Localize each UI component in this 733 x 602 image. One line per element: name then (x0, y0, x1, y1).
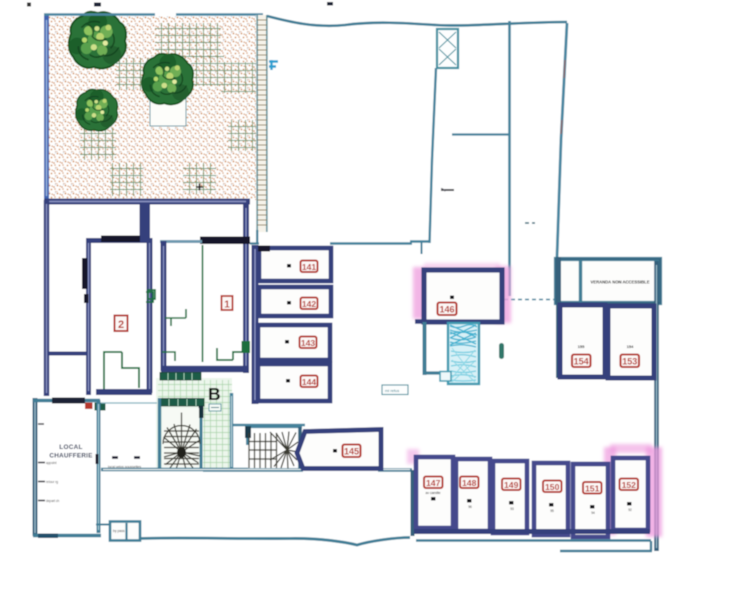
svg-text:VERANDA NON ACCESSIBLE: VERANDA NON ACCESSIBLE (590, 280, 649, 285)
svg-text:147: 147 (426, 478, 441, 488)
svg-text:95: 95 (550, 509, 554, 513)
svg-text:retour rg: retour rg (46, 480, 58, 484)
svg-text:141: 141 (302, 262, 317, 272)
svg-text:149: 149 (504, 480, 519, 490)
svg-text:2: 2 (118, 319, 124, 331)
svg-text:93: 93 (510, 507, 514, 511)
svg-text:depart ch: depart ch (46, 499, 60, 503)
svg-text:146: 146 (439, 305, 454, 315)
svg-text:154: 154 (627, 344, 634, 349)
svg-text:appoint: appoint (46, 461, 57, 465)
svg-text:CHAUFFERIE: CHAUFFERIE (49, 453, 93, 460)
svg-text:94: 94 (591, 511, 595, 515)
svg-text:1: 1 (224, 300, 230, 311)
svg-text:LOCAL: LOCAL (59, 444, 83, 451)
svg-text:by pass: by pass (113, 529, 125, 533)
svg-text:B: B (208, 384, 221, 404)
svg-text:144: 144 (302, 377, 317, 387)
svg-text:151: 151 (585, 483, 600, 493)
svg-text:154: 154 (574, 357, 589, 367)
svg-text:96: 96 (468, 505, 472, 509)
svg-text:143: 143 (301, 338, 316, 348)
svg-text:153: 153 (622, 357, 637, 367)
svg-text:92: 92 (628, 508, 632, 512)
svg-text:155: 155 (578, 344, 585, 349)
svg-text:145: 145 (344, 447, 359, 457)
svg-text:148: 148 (462, 478, 477, 488)
svg-text:av camille: av camille (425, 491, 440, 495)
svg-text:150: 150 (545, 482, 560, 492)
svg-text:ml refus: ml refus (385, 388, 399, 393)
svg-text:142: 142 (302, 299, 317, 309)
svg-text:152: 152 (622, 480, 637, 490)
